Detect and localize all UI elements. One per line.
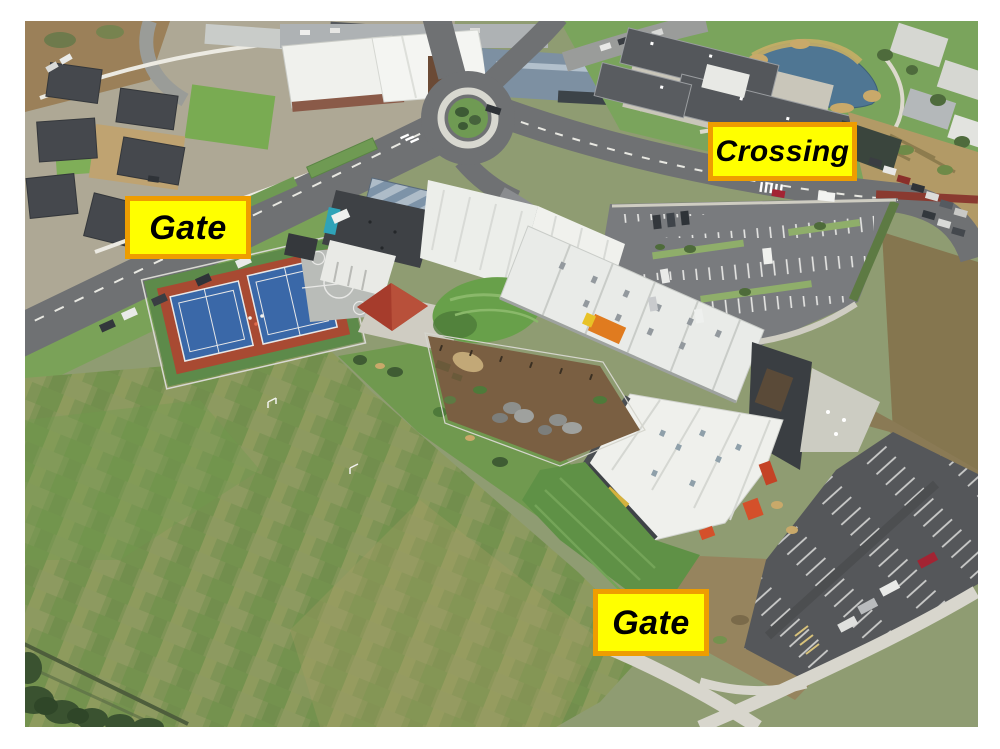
gate-label-bottom: Gate: [593, 589, 709, 656]
gate-label-left: Gate: [125, 196, 251, 259]
crossing-label: Crossing: [708, 122, 857, 181]
roundabout: [421, 71, 515, 165]
annotated-aerial-photo: Gate Crossing Gate: [0, 0, 1000, 749]
